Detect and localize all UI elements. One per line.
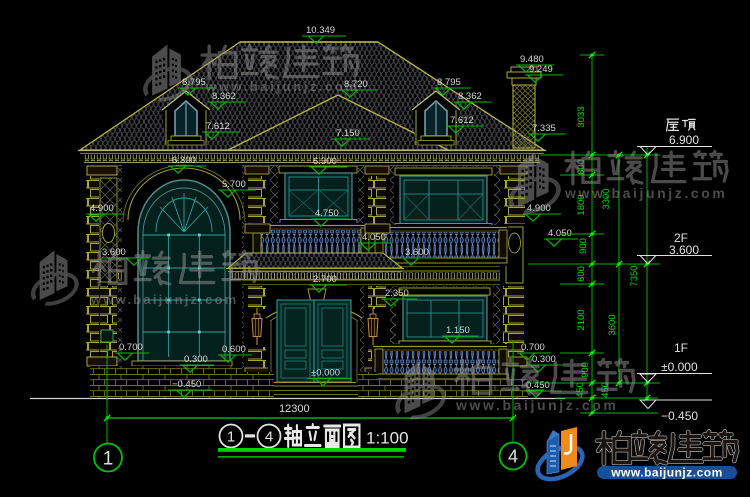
svg-text:1.150: 1.150: [446, 325, 470, 336]
svg-text:−0.450: −0.450: [661, 409, 698, 423]
svg-text:7.335: 7.335: [532, 123, 556, 134]
svg-text:0.300: 0.300: [184, 354, 208, 365]
svg-text:4.900: 4.900: [90, 203, 114, 214]
svg-text:12300: 12300: [279, 403, 310, 415]
svg-text:1:100: 1:100: [366, 429, 409, 448]
svg-text:−0.450: −0.450: [172, 379, 201, 390]
svg-text:450: 450: [575, 382, 586, 398]
svg-text:2.700: 2.700: [313, 274, 337, 285]
svg-text:9.249: 9.249: [529, 64, 553, 75]
svg-text:±0.000: ±0.000: [661, 360, 698, 374]
svg-text:6.300: 6.300: [172, 155, 196, 166]
svg-text:0.700: 0.700: [119, 342, 143, 353]
svg-text:10.349: 10.349: [306, 25, 335, 36]
svg-text:0.600: 0.600: [222, 344, 246, 355]
svg-text:4.050: 4.050: [362, 232, 386, 243]
svg-text:www.baijunjz.com: www.baijunjz.com: [90, 292, 238, 307]
svg-text:±0.000: ±0.000: [311, 368, 340, 379]
svg-text:www.baijunjz.com: www.baijunjz.com: [455, 397, 618, 413]
svg-text:6.300: 6.300: [313, 156, 337, 167]
svg-text:1: 1: [103, 449, 114, 470]
svg-text:4: 4: [508, 447, 518, 467]
svg-text:600: 600: [576, 266, 587, 282]
svg-text:2.350: 2.350: [385, 288, 409, 299]
svg-text:1: 1: [227, 429, 235, 446]
svg-text:3033: 3033: [576, 106, 587, 127]
svg-text:0.300: 0.300: [532, 354, 556, 365]
svg-text:8.362: 8.362: [458, 91, 482, 102]
svg-text:8.795: 8.795: [437, 77, 461, 88]
svg-text:7350: 7350: [629, 265, 640, 286]
svg-text:3.600: 3.600: [669, 243, 699, 257]
svg-text:900: 900: [578, 238, 589, 254]
svg-text:7.612: 7.612: [450, 115, 474, 126]
svg-text:7.612: 7.612: [206, 121, 230, 132]
svg-text:7.150: 7.150: [336, 128, 360, 139]
svg-text:4: 4: [265, 429, 273, 446]
svg-text:1F: 1F: [674, 341, 688, 355]
svg-text:www.baijunjz.com: www.baijunjz.com: [564, 185, 727, 201]
svg-text:3.600: 3.600: [405, 247, 429, 258]
svg-text:2100: 2100: [576, 309, 587, 330]
svg-text:3600: 3600: [607, 314, 618, 335]
svg-text:4.750: 4.750: [315, 208, 339, 219]
svg-text:www.baijunjz.com: www.baijunjz.com: [205, 79, 360, 94]
svg-text:5.700: 5.700: [222, 179, 246, 190]
svg-text:0.700: 0.700: [521, 342, 545, 353]
svg-text:www.baijunjz.com: www.baijunjz.com: [610, 466, 723, 480]
svg-text:6.900: 6.900: [669, 133, 699, 147]
